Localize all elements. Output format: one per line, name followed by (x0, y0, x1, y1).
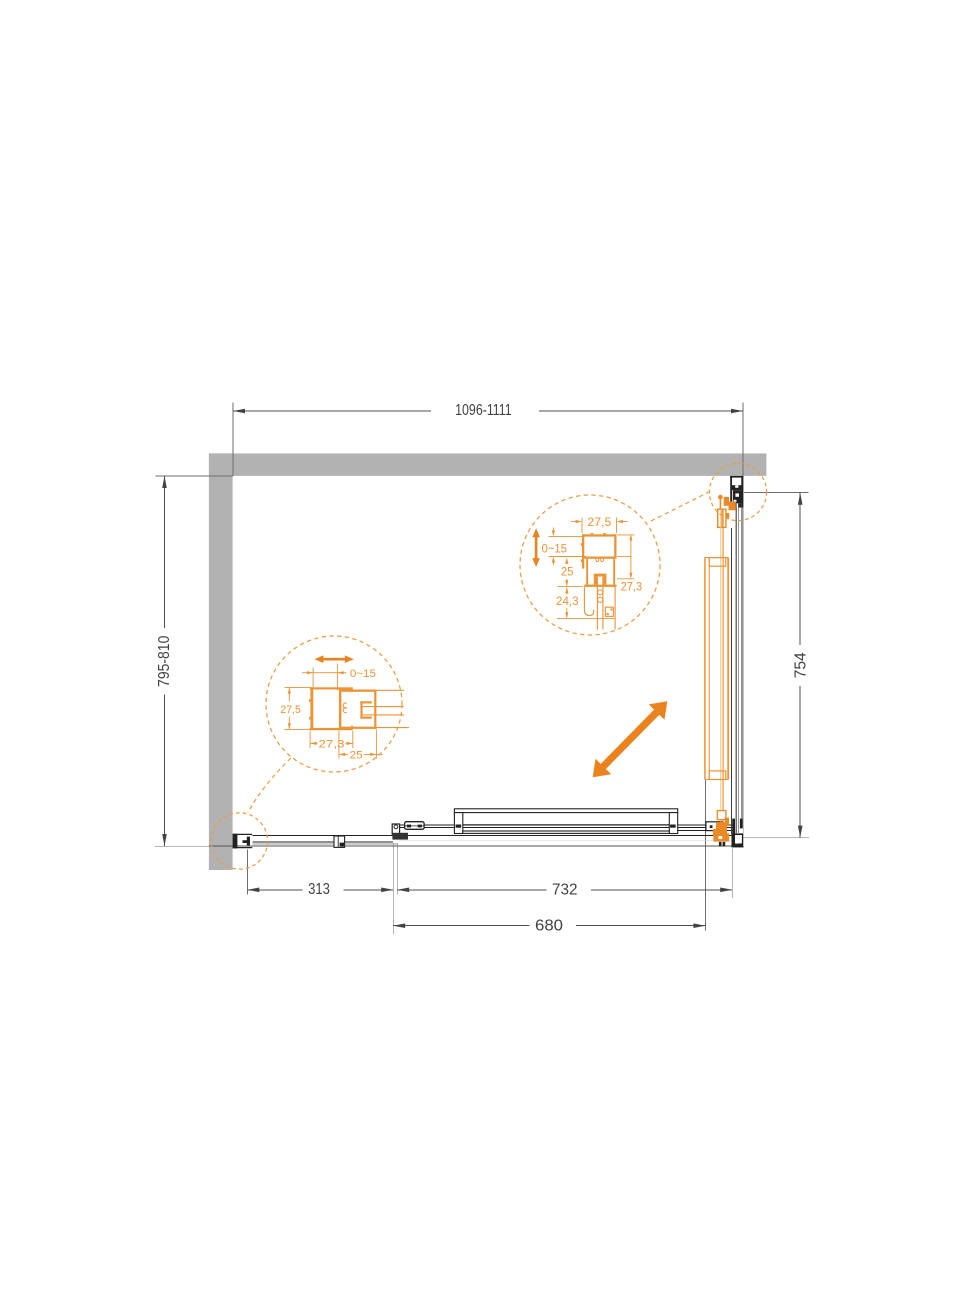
svg-text:27,3: 27,3 (621, 580, 643, 593)
svg-text:313: 313 (308, 881, 330, 898)
svg-text:25: 25 (561, 566, 574, 579)
svg-text:1096-1111: 1096-1111 (455, 402, 512, 419)
svg-text:0~15: 0~15 (541, 543, 567, 556)
svg-text:27,3: 27,3 (319, 739, 345, 751)
svg-text:27,5: 27,5 (280, 704, 301, 716)
svg-text:25: 25 (350, 750, 363, 762)
svg-text:680: 680 (535, 917, 563, 934)
svg-text:732: 732 (552, 882, 578, 899)
svg-text:24,3: 24,3 (556, 595, 579, 608)
svg-text:754: 754 (792, 652, 809, 678)
svg-text:795-810: 795-810 (156, 636, 173, 687)
svg-text:27,5: 27,5 (587, 516, 611, 529)
svg-text:0~15: 0~15 (350, 668, 376, 680)
